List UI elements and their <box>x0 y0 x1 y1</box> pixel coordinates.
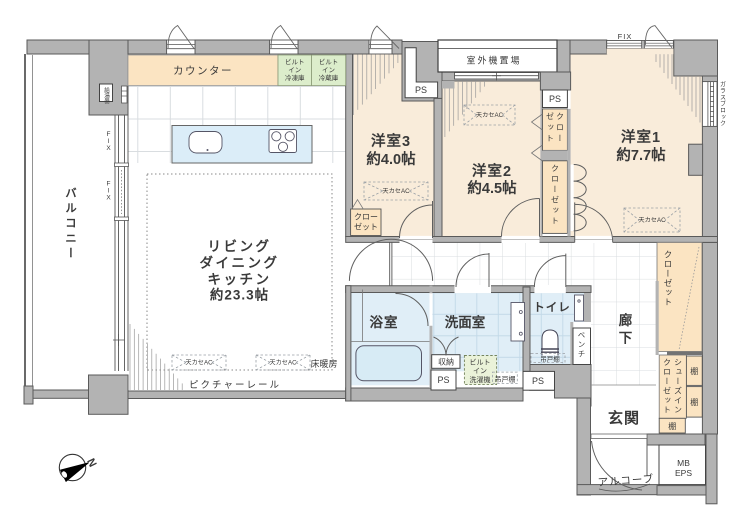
svg-text:クロー: クロー <box>354 213 378 222</box>
svg-text:キッチン: キッチン <box>208 272 272 287</box>
svg-text:ダイニング: ダイニング <box>200 255 280 271</box>
svg-text:廊下: 廊下 <box>617 312 633 348</box>
svg-text:MB: MB <box>677 458 690 468</box>
svg-text:クローゼット: クローゼット <box>663 250 673 307</box>
svg-text:トイレ: トイレ <box>533 301 571 314</box>
svg-text:玄関: 玄関 <box>608 409 640 427</box>
svg-text:ベンチ: ベンチ <box>577 331 586 360</box>
svg-text:冷蔵庫: 冷蔵庫 <box>319 73 339 82</box>
svg-text:洗濯機: 洗濯機 <box>470 375 491 384</box>
svg-text:約4.0帖: 約4.0帖 <box>366 150 416 168</box>
svg-text:棚: 棚 <box>668 421 676 431</box>
svg-text:シューズイン: シューズイン <box>674 358 683 415</box>
svg-text:約7.7帖: 約7.7帖 <box>616 146 666 164</box>
svg-text:ビルト: ビルト <box>470 358 491 367</box>
svg-text:X: X <box>106 195 111 202</box>
svg-text:ピクチャーレール: ピクチャーレール <box>189 380 281 391</box>
svg-text:冷凍庫: 冷凍庫 <box>285 73 305 82</box>
svg-text:I: I <box>108 188 110 195</box>
svg-text:イン: イン <box>322 67 335 74</box>
svg-text:洗面室: 洗面室 <box>445 314 486 330</box>
svg-text:クロー: クロー <box>556 112 565 145</box>
svg-text:PS: PS <box>532 376 544 386</box>
svg-text:ビルト: ビルト <box>285 57 305 66</box>
svg-text:室外機置場: 室外機置場 <box>466 55 521 66</box>
svg-text:棚: 棚 <box>690 366 698 376</box>
svg-text:洋室1: 洋室1 <box>621 128 661 146</box>
svg-text:約4.5帖: 約4.5帖 <box>467 179 517 197</box>
svg-text:リビング: リビング <box>208 238 272 254</box>
svg-text:イン: イン <box>288 67 301 74</box>
svg-text:ゼット: ゼット <box>354 222 378 232</box>
svg-text:吊戸棚: 吊戸棚 <box>495 375 516 384</box>
svg-text:ビルト: ビルト <box>319 57 339 66</box>
svg-text:バルコニー: バルコニー <box>64 187 77 262</box>
svg-text:PS: PS <box>415 85 427 95</box>
svg-text:X: X <box>106 145 111 152</box>
svg-text:イン: イン <box>473 368 487 375</box>
svg-text:床暖房: 床暖房 <box>310 358 337 369</box>
svg-text:収納: 収納 <box>438 357 454 367</box>
svg-text:ゼット: ゼット <box>546 112 555 145</box>
svg-text:天カセAC: 天カセAC <box>638 217 666 224</box>
svg-text:F: F <box>107 181 111 188</box>
svg-text:PS: PS <box>549 94 561 104</box>
svg-text:棚: 棚 <box>690 397 698 407</box>
svg-text:天カセAC: 天カセAC <box>185 360 213 367</box>
svg-text:カウンター: カウンター <box>173 65 233 77</box>
svg-text:天カセAC: 天カセAC <box>382 188 410 195</box>
svg-text:クローゼット: クローゼット <box>551 164 560 227</box>
svg-text:洋室3: 洋室3 <box>371 132 411 150</box>
svg-text:給湯器: 給湯器 <box>103 86 110 105</box>
svg-text:ガラスブロック: ガラスブロック <box>719 80 726 126</box>
svg-text:洋室2: 洋室2 <box>472 162 512 180</box>
svg-text:天カセAC: 天カセAC <box>269 360 297 367</box>
svg-text:約23.3帖: 約23.3帖 <box>210 287 269 303</box>
svg-text:クローゼット: クローゼット <box>663 358 672 415</box>
svg-text:F: F <box>107 131 111 138</box>
svg-text:I: I <box>108 138 110 145</box>
svg-text:吊戸棚: 吊戸棚 <box>540 354 560 363</box>
svg-text:浴室: 浴室 <box>370 314 399 330</box>
svg-text:天カセAC: 天カセAC <box>476 112 504 119</box>
svg-text:EPS: EPS <box>675 468 692 478</box>
svg-text:PS: PS <box>437 375 449 385</box>
svg-text:FIX: FIX <box>618 32 633 41</box>
